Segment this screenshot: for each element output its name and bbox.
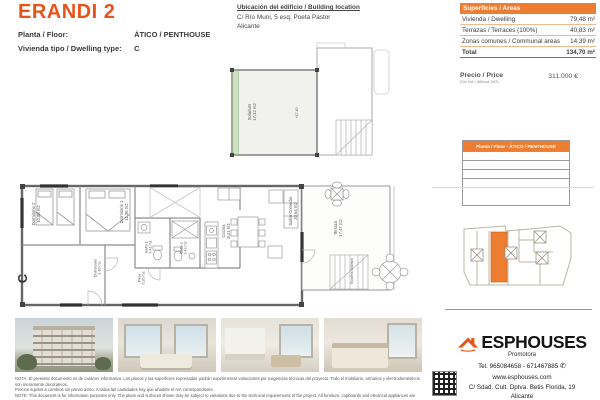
window-shape [387, 323, 417, 359]
brand-name: ESPHOUSES [481, 332, 586, 353]
bed-shape [332, 343, 388, 368]
disclaimer-line: NOTE: This document is for information p… [15, 393, 423, 400]
brand-block: ESPHOUSES Promotora Tel. 965084658 - 671… [452, 332, 592, 400]
house-icon [457, 334, 479, 352]
stair-core-symbols [471, 231, 548, 264]
disclaimer-line: NOTA: El presente documento es de caráct… [15, 376, 423, 387]
brand-phone: Tel. 965084658 - 671467885 ✆ [452, 362, 592, 373]
disclaimer: NOTA: El presente documento es de caráct… [15, 376, 423, 400]
photo-building-exterior [15, 318, 113, 372]
brochure-page: ERANDI 2 Planta / Floor: ÁTICO / PENTHOU… [0, 0, 600, 400]
photo-living-room [118, 318, 216, 372]
penthouse-plan [20, 182, 408, 307]
room-label-terraza: Terraza17,47 m2 [333, 219, 343, 236]
room-label-dormitorio1: Dormitorio 111,36 m2 [119, 201, 129, 224]
tree-shape [17, 354, 37, 370]
solarium-plan [230, 43, 389, 157]
kitchen-cabinet-shape [225, 328, 265, 360]
photo-bedroom [324, 318, 422, 372]
window-shape [174, 324, 208, 358]
room-label-salon-comedor: Salón Comedor20,64 m2 [288, 196, 298, 225]
unit-letter: C [15, 274, 30, 283]
table-shape [271, 355, 301, 367]
room-label-escalera: Escalera Solárium [351, 258, 355, 284]
room-label-solarium: Solarium17,12 m2 [247, 103, 257, 120]
room-label-dormitorio2: Dormitorio 210,88 m2 [31, 203, 41, 226]
solarium-stairs [336, 120, 372, 155]
site-plan [464, 226, 571, 285]
level-mark: +17,40 [295, 107, 299, 118]
tree-shape [95, 357, 111, 370]
whatsapp-icon: ✆ [560, 363, 566, 370]
building-image-shape [33, 326, 95, 366]
brand-city: Alicante [452, 392, 592, 400]
room-label-cocina: Cocina8,41 m2 [221, 223, 231, 238]
sofa-shape [140, 354, 192, 368]
room-label-distribuidor: Distribuidor1,46 m2 [94, 259, 103, 277]
brand-address: C/ Sdad. Cult. Dptva. Betis Florida, 19 [452, 383, 592, 393]
window-shape [279, 324, 313, 358]
room-label-bano1: Baño 14,41 m2 [145, 241, 154, 254]
room-label-bano2: Baño 23,42 m2 [180, 242, 189, 255]
terrace-stairs [330, 255, 368, 289]
brand-website: www.esphouses.com [452, 373, 592, 383]
room-label-paso: Paso6,26 m2 [138, 272, 147, 285]
window-shape [124, 324, 162, 358]
photo-kitchen-living [221, 318, 319, 372]
